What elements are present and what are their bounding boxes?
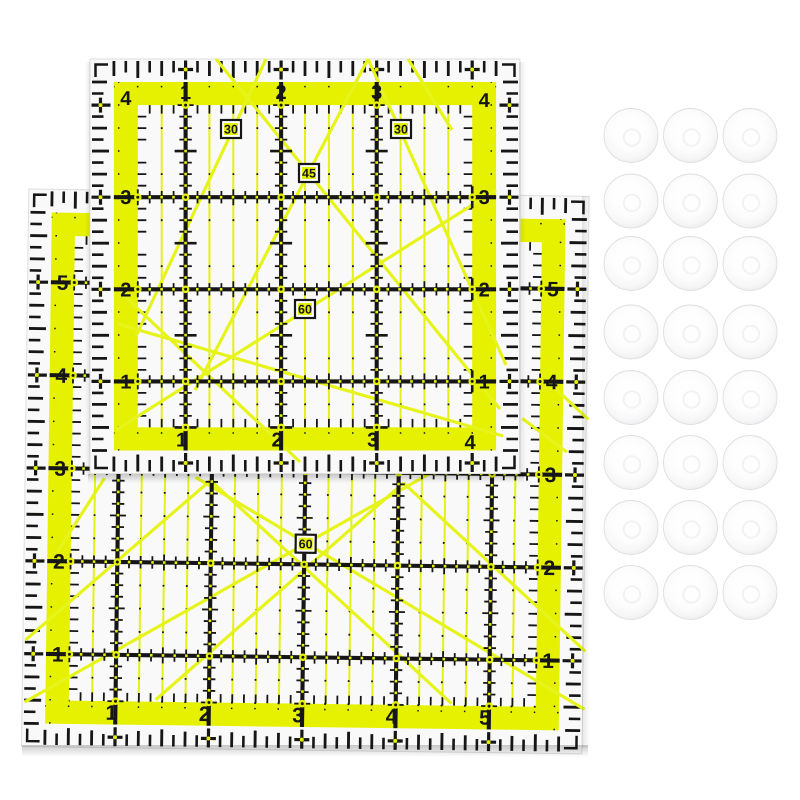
svg-text:4: 4 [479,90,491,112]
svg-text:1: 1 [479,371,490,393]
svg-text:2: 2 [479,279,490,301]
svg-text:2: 2 [199,703,211,726]
svg-text:4: 4 [120,88,132,110]
svg-text:3: 3 [479,187,490,209]
svg-text:3: 3 [292,704,304,727]
svg-text:1: 1 [176,429,187,451]
svg-text:1: 1 [52,643,64,666]
svg-text:45: 45 [302,167,316,181]
svg-text:3: 3 [367,429,378,451]
svg-text:4: 4 [386,705,398,728]
svg-text:3: 3 [371,82,382,104]
svg-text:60: 60 [299,537,313,551]
svg-text:30: 30 [224,123,238,137]
svg-text:2: 2 [272,429,283,451]
svg-text:3: 3 [54,458,66,481]
svg-text:1: 1 [120,371,131,393]
svg-text:1: 1 [105,702,117,725]
svg-text:1: 1 [180,82,191,104]
svg-text:5: 5 [479,707,491,730]
svg-text:3: 3 [544,464,556,487]
svg-text:2: 2 [53,551,65,574]
svg-text:2: 2 [543,557,555,580]
svg-text:30: 30 [394,123,408,137]
svg-text:4: 4 [55,365,67,388]
svg-text:1: 1 [542,650,554,673]
svg-text:60: 60 [298,303,312,317]
svg-text:2: 2 [276,82,287,104]
svg-text:4: 4 [546,371,558,394]
svg-text:5: 5 [547,278,559,301]
svg-text:5: 5 [57,272,69,295]
svg-text:4: 4 [464,432,476,454]
svg-text:3: 3 [120,187,131,209]
svg-text:2: 2 [120,279,131,301]
